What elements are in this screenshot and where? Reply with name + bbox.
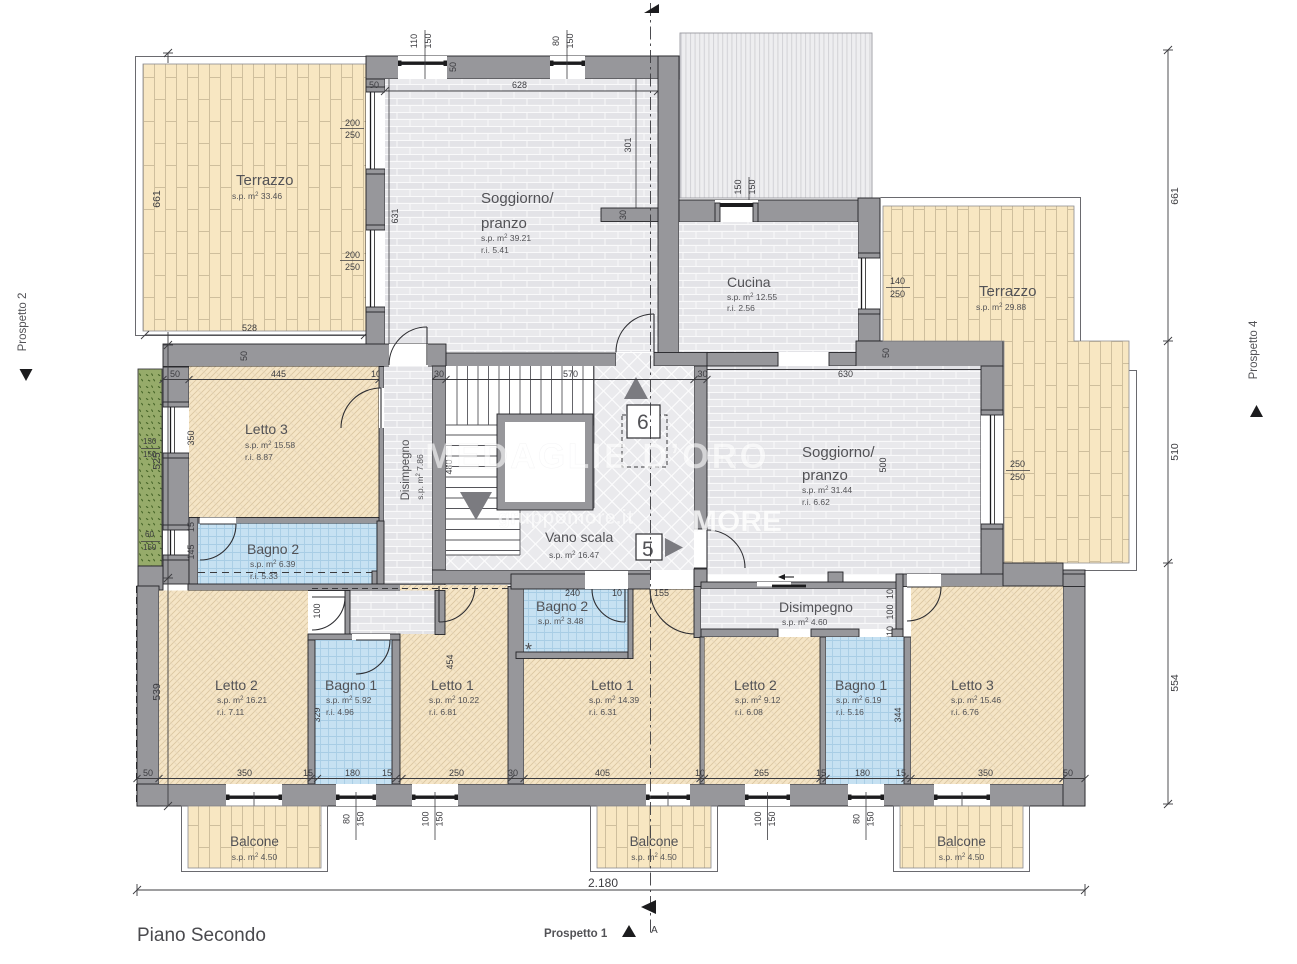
svg-text:30: 30 — [698, 369, 708, 379]
svg-text:150: 150 — [143, 543, 157, 552]
svg-text:50: 50 — [239, 351, 249, 361]
svg-text:s.p. m2 7.86: s.p. m2 7.86 — [415, 454, 425, 500]
svg-text:445: 445 — [271, 369, 286, 379]
svg-text:250: 250 — [1010, 459, 1025, 469]
svg-text:s.p. m2 9.12: s.p. m2 9.12 — [735, 695, 781, 705]
svg-text:250: 250 — [345, 130, 360, 140]
svg-text:15: 15 — [186, 522, 196, 532]
svg-text:r.i. 6.76: r.i. 6.76 — [951, 707, 979, 717]
svg-text:250: 250 — [1010, 472, 1025, 482]
svg-text:r.i. 7.11: r.i. 7.11 — [217, 707, 245, 717]
svg-text:301: 301 — [623, 137, 633, 152]
svg-text:150: 150 — [356, 811, 366, 826]
svg-text:Soggiorno/: Soggiorno/ — [802, 444, 875, 461]
svg-text:628: 628 — [512, 80, 527, 90]
svg-text:150: 150 — [733, 179, 743, 194]
svg-text:344: 344 — [893, 707, 903, 722]
svg-text:r.i. 6.08: r.i. 6.08 — [735, 707, 763, 717]
svg-text:50: 50 — [1063, 768, 1073, 778]
svg-text:s.p. m2 6.39: s.p. m2 6.39 — [250, 559, 296, 569]
svg-text:150: 150 — [866, 811, 876, 826]
svg-text:Terrazzo: Terrazzo — [236, 172, 294, 189]
svg-text:Bagno 2: Bagno 2 — [247, 541, 299, 557]
svg-text:100: 100 — [312, 603, 322, 618]
svg-text:Letto 2: Letto 2 — [215, 677, 258, 693]
svg-text:250: 250 — [345, 262, 360, 272]
svg-text:r.i. 6.81: r.i. 6.81 — [429, 707, 457, 717]
svg-text:s.p. m2 4.50: s.p. m2 4.50 — [631, 852, 677, 862]
svg-text:Balcone: Balcone — [937, 834, 986, 849]
svg-text:155: 155 — [654, 588, 669, 598]
svg-text:150: 150 — [565, 33, 575, 48]
svg-text:140: 140 — [890, 276, 905, 286]
svg-text:110: 110 — [409, 34, 419, 48]
svg-text:180: 180 — [345, 768, 360, 778]
svg-text:50: 50 — [369, 80, 379, 90]
svg-text:s.p. m2 6.19: s.p. m2 6.19 — [836, 695, 882, 705]
svg-text:Balcone: Balcone — [230, 834, 279, 849]
svg-text:r.i. 6.31: r.i. 6.31 — [589, 707, 617, 717]
svg-text:r.i. 8.87: r.i. 8.87 — [245, 452, 273, 462]
svg-text:200: 200 — [345, 250, 360, 260]
svg-text:50: 50 — [881, 348, 891, 358]
svg-text:130: 130 — [143, 437, 157, 446]
svg-text:510: 510 — [1169, 443, 1181, 461]
svg-text:250: 250 — [890, 289, 905, 299]
svg-text:405: 405 — [595, 768, 610, 778]
svg-text:528: 528 — [242, 323, 257, 333]
svg-text:145: 145 — [186, 544, 196, 559]
svg-text:150: 150 — [423, 33, 433, 48]
svg-text:r.i. 5.16: r.i. 5.16 — [836, 707, 864, 717]
svg-text:gruppomore.it: gruppomore.it — [498, 507, 634, 529]
svg-text:2.180: 2.180 — [588, 876, 618, 890]
svg-text:350: 350 — [978, 768, 993, 778]
svg-text:6: 6 — [637, 411, 649, 434]
svg-text:Disimpegno: Disimpegno — [400, 440, 412, 501]
svg-text:Balcone: Balcone — [630, 834, 679, 849]
svg-text:Letto 1: Letto 1 — [431, 677, 474, 693]
svg-text:180: 180 — [855, 768, 870, 778]
svg-text:MEDAGLIE D’ORO: MEDAGLIE D’ORO — [425, 437, 769, 476]
svg-text:5: 5 — [642, 538, 654, 561]
svg-text:525: 525 — [151, 452, 163, 470]
svg-text:661: 661 — [151, 190, 163, 208]
svg-text:630: 630 — [838, 369, 853, 379]
svg-text:10: 10 — [695, 768, 705, 778]
svg-text:500: 500 — [878, 457, 888, 472]
svg-text:150: 150 — [767, 811, 777, 826]
svg-text:661: 661 — [1169, 187, 1181, 205]
svg-text:80: 80 — [551, 36, 561, 46]
svg-text:50: 50 — [448, 62, 458, 72]
svg-text:Prospetto 1: Prospetto 1 — [544, 928, 608, 940]
svg-text:s.p. m2 4.50: s.p. m2 4.50 — [232, 852, 278, 862]
svg-text:Vano scala: Vano scala — [545, 529, 613, 545]
svg-text:Letto 1: Letto 1 — [591, 677, 634, 693]
svg-text:454: 454 — [445, 654, 455, 669]
svg-text:10: 10 — [612, 588, 622, 598]
svg-text:Cucina: Cucina — [727, 274, 771, 290]
svg-text:240: 240 — [565, 588, 580, 598]
svg-text:s.p. m2 5.92: s.p. m2 5.92 — [326, 695, 372, 705]
svg-text:30: 30 — [618, 210, 628, 220]
svg-text:80: 80 — [342, 814, 352, 824]
svg-text:r.i. 4.96: r.i. 4.96 — [326, 707, 354, 717]
svg-text:539: 539 — [151, 683, 163, 701]
svg-text:Letto 3: Letto 3 — [951, 677, 994, 693]
svg-text:350: 350 — [186, 430, 196, 445]
svg-text:570: 570 — [563, 369, 578, 379]
svg-text:100: 100 — [421, 811, 431, 826]
svg-text:30: 30 — [508, 768, 518, 778]
svg-text:Prospetto 2: Prospetto 2 — [17, 293, 29, 352]
svg-text:100: 100 — [885, 604, 895, 619]
svg-text:10: 10 — [885, 589, 895, 599]
svg-text:50: 50 — [170, 369, 180, 379]
svg-text:15: 15 — [896, 768, 906, 778]
svg-text:A: A — [651, 925, 658, 936]
svg-text:Bagno 2: Bagno 2 — [536, 598, 588, 614]
svg-text:pranzo: pranzo — [802, 467, 848, 484]
svg-text:250: 250 — [449, 768, 464, 778]
svg-text:MORE: MORE — [692, 505, 782, 538]
svg-text:50: 50 — [143, 768, 153, 778]
svg-text:15: 15 — [816, 768, 826, 778]
svg-text:631: 631 — [390, 208, 400, 223]
svg-text:30: 30 — [434, 369, 444, 379]
svg-text:15: 15 — [382, 768, 392, 778]
svg-text:Terrazzo: Terrazzo — [979, 283, 1037, 300]
svg-text:60: 60 — [145, 530, 154, 539]
svg-text:Disimpegno: Disimpegno — [779, 599, 853, 615]
svg-text:Bagno 1: Bagno 1 — [325, 677, 377, 693]
svg-text:150: 150 — [435, 811, 445, 826]
svg-text:200: 200 — [345, 118, 360, 128]
svg-text:100: 100 — [753, 811, 763, 826]
svg-text:Soggiorno/: Soggiorno/ — [481, 190, 554, 207]
svg-text:r.i. 6.62: r.i. 6.62 — [802, 497, 830, 507]
svg-text:s.p. m2 4.60: s.p. m2 4.60 — [782, 617, 828, 627]
svg-text:350: 350 — [237, 768, 252, 778]
svg-text:Piano Secondo: Piano Secondo — [137, 925, 266, 946]
svg-text:Letto 3: Letto 3 — [245, 421, 288, 437]
svg-text:r.i. 5.33: r.i. 5.33 — [250, 571, 278, 581]
svg-text:Bagno 1: Bagno 1 — [835, 677, 887, 693]
svg-text:15: 15 — [303, 768, 313, 778]
svg-text:s.p. m2 4.50: s.p. m2 4.50 — [939, 852, 985, 862]
svg-text:Prospetto 4: Prospetto 4 — [1248, 320, 1260, 379]
svg-text:554: 554 — [1169, 674, 1181, 692]
svg-text:150: 150 — [747, 179, 757, 194]
svg-text:80: 80 — [852, 814, 862, 824]
svg-text:Letto 2: Letto 2 — [734, 677, 777, 693]
svg-text:pranzo: pranzo — [481, 215, 527, 232]
svg-text:r.i. 2.56: r.i. 2.56 — [727, 303, 755, 313]
svg-text:265: 265 — [754, 768, 769, 778]
svg-text:s.p. m2 3.48: s.p. m2 3.48 — [538, 616, 584, 626]
svg-text:r.i. 5.41: r.i. 5.41 — [481, 245, 509, 255]
